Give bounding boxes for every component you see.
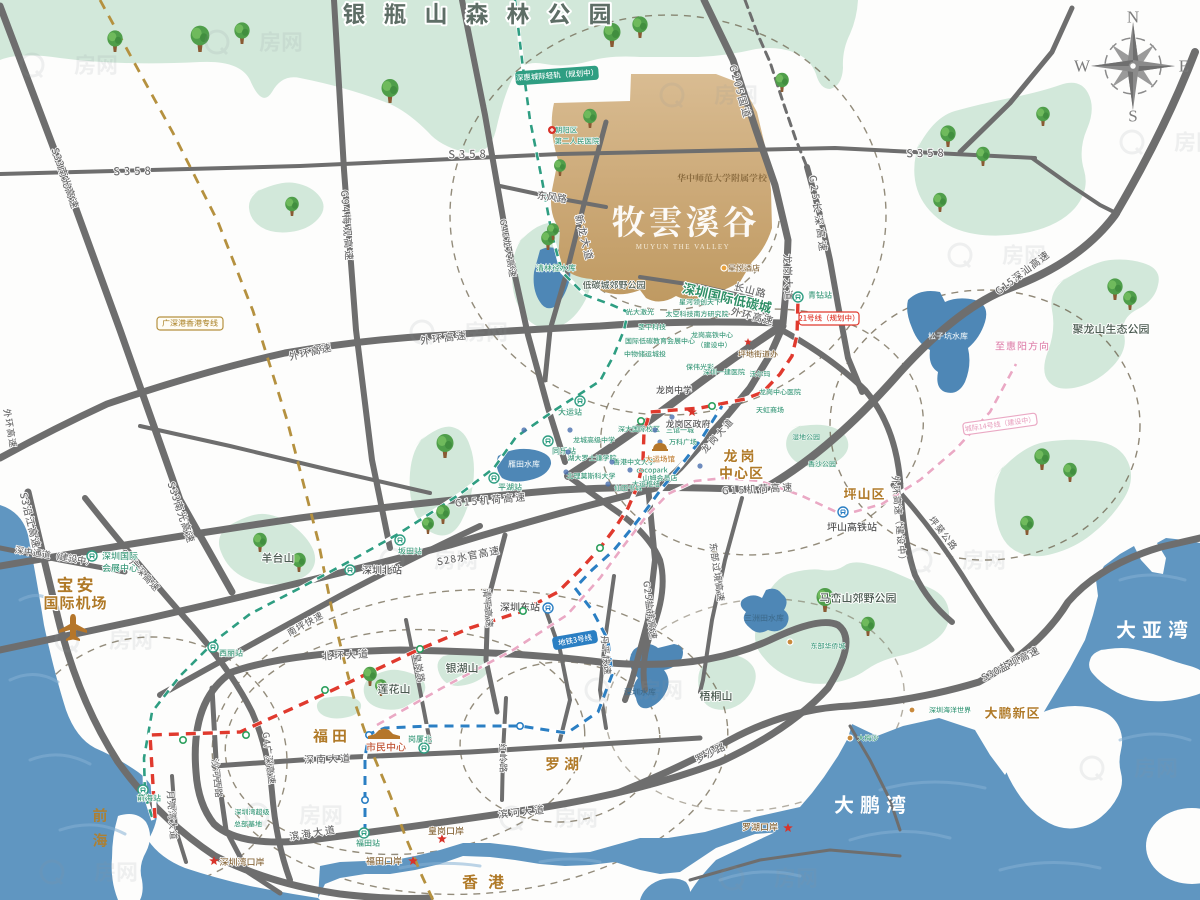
svg-text:N: N [1127,8,1139,27]
svg-text:W: W [1074,57,1091,76]
svg-text:E: E [1179,57,1189,76]
svg-text:MUYUN THE VALLEY: MUYUN THE VALLEY [636,243,730,251]
svg-text:S: S [1128,107,1137,126]
